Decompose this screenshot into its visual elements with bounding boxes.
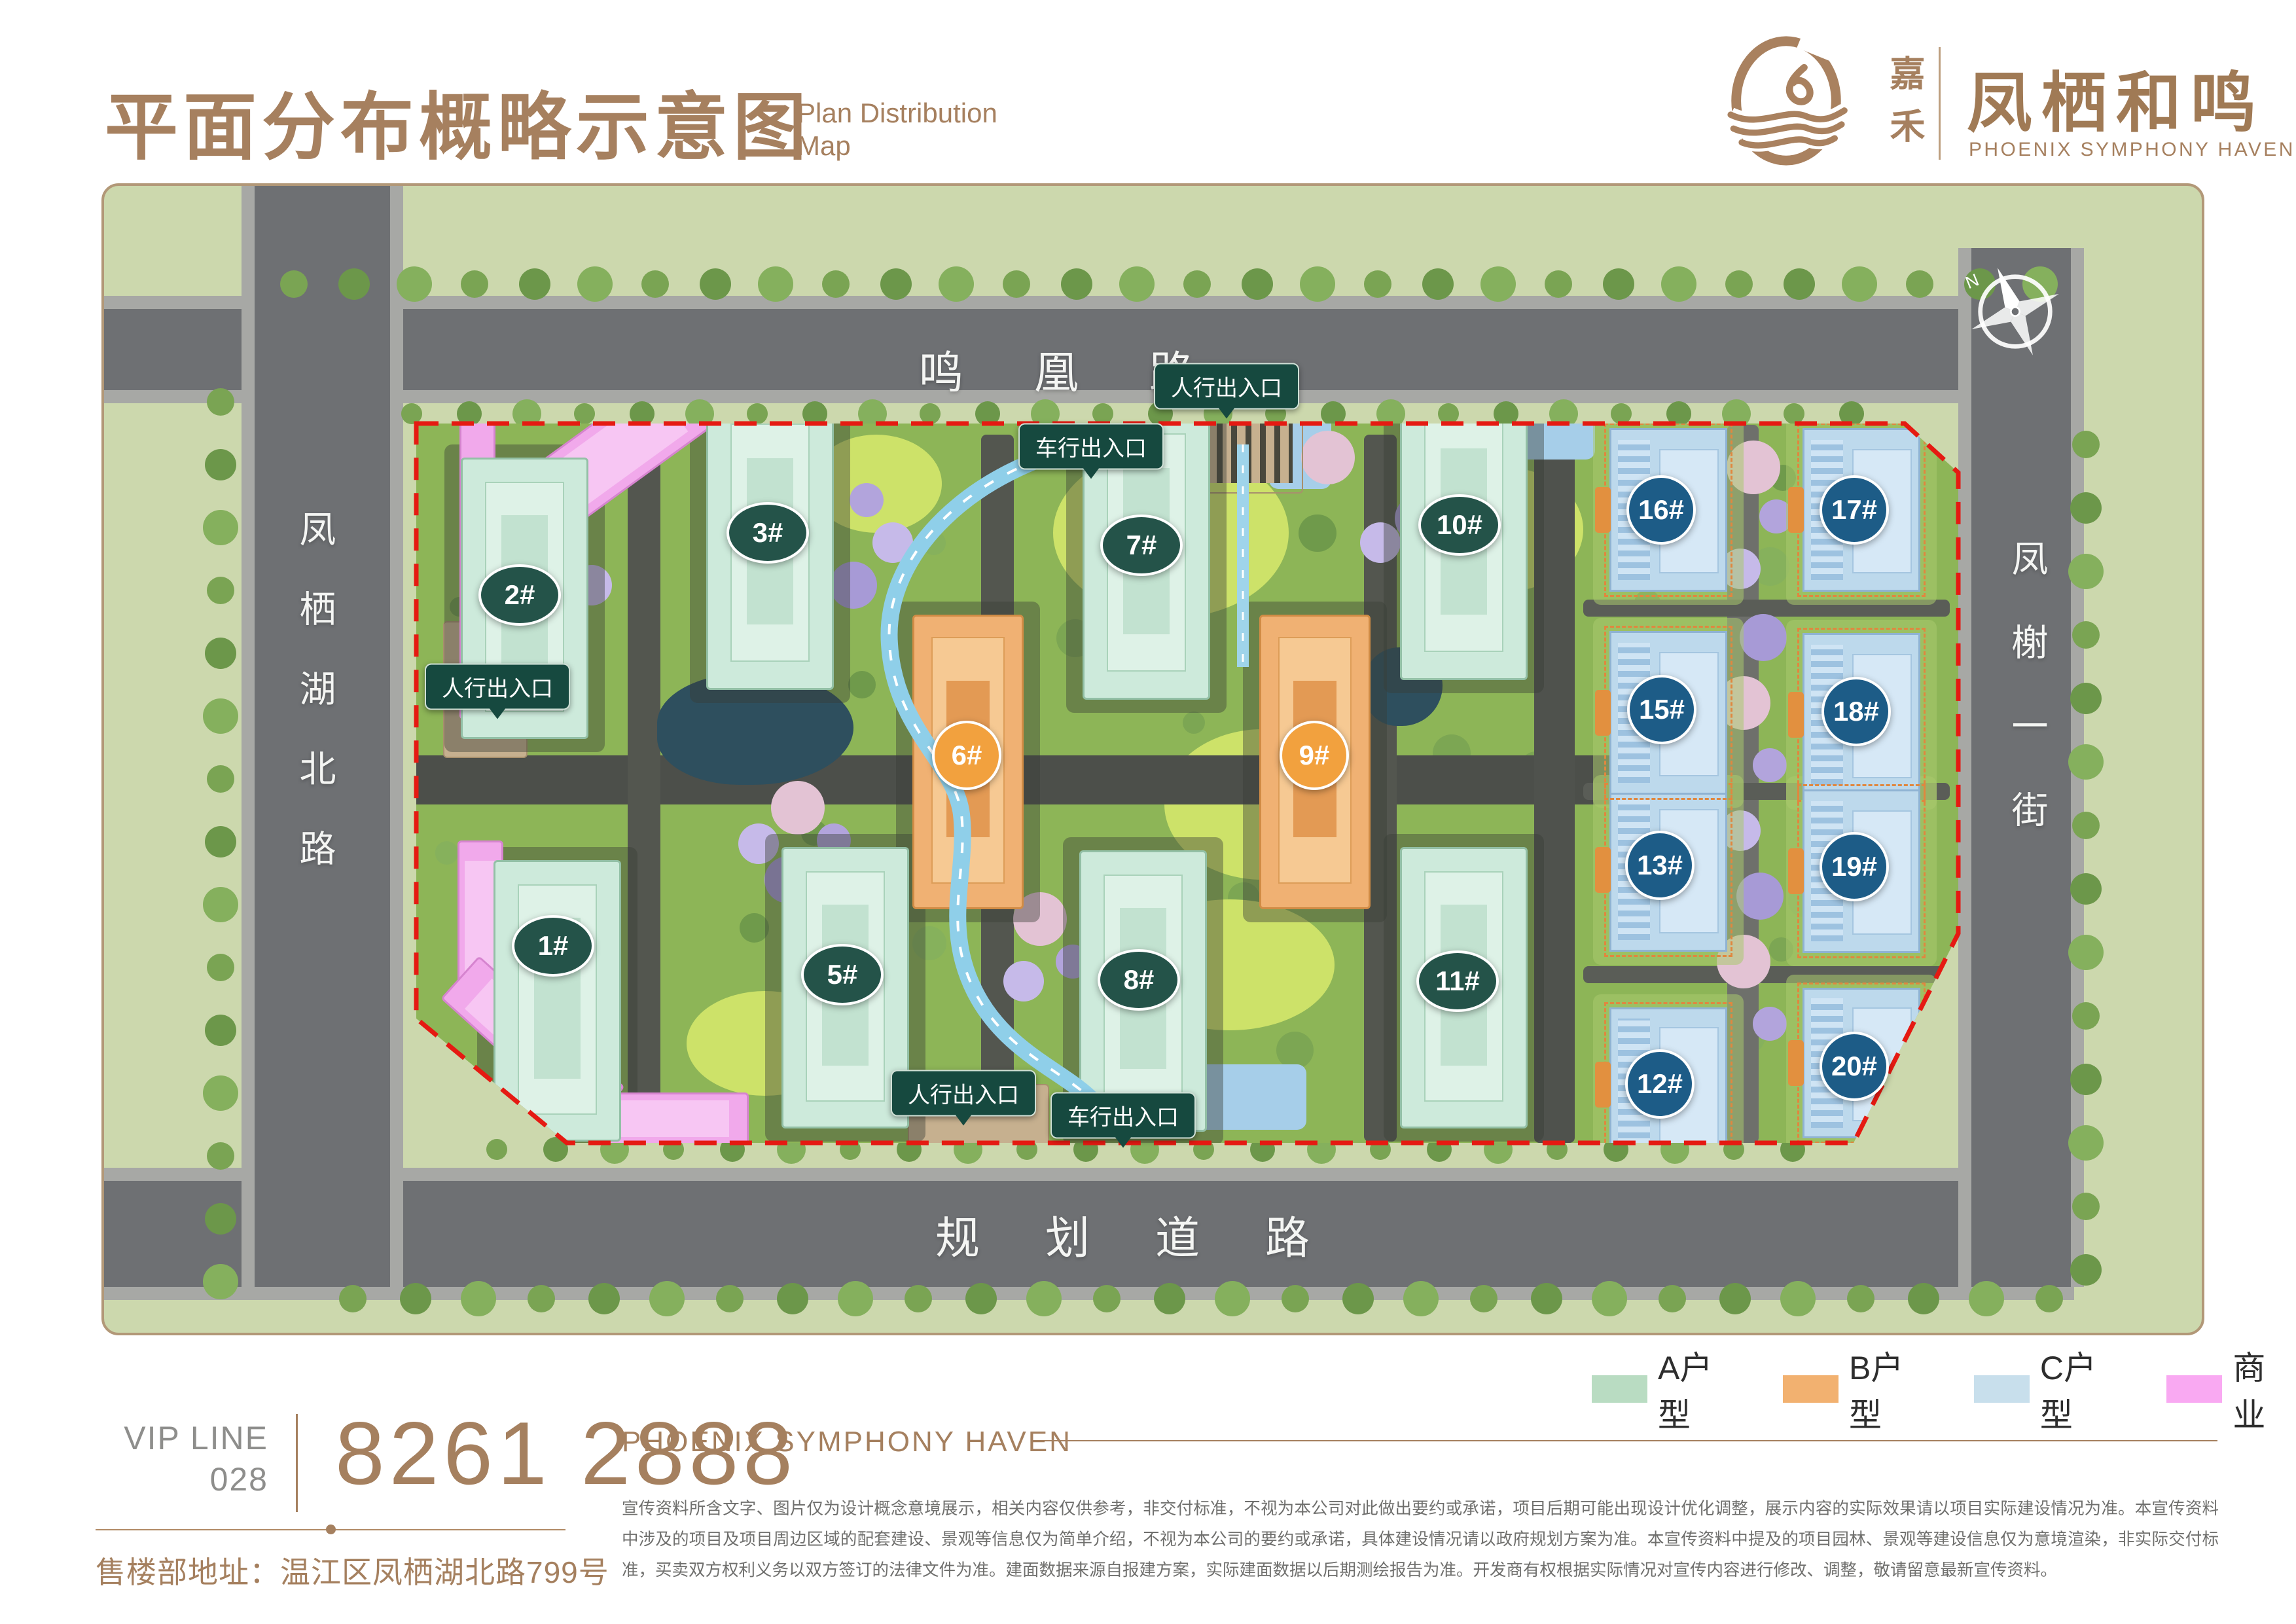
tree xyxy=(802,401,827,426)
tree xyxy=(207,577,234,604)
road-label-bottom: 规划道路 xyxy=(935,1202,1375,1267)
building-badge-2: 2# xyxy=(478,564,561,626)
tree xyxy=(1282,1285,1309,1312)
tree xyxy=(1784,403,1804,424)
blossom-tree xyxy=(850,483,884,517)
building-badge-18: 18# xyxy=(1821,677,1891,746)
page-root: { "header": { "title": "平面分布概略示意图", "sub… xyxy=(0,0,2296,1624)
blossom-tree xyxy=(771,781,825,835)
tree xyxy=(205,826,236,857)
project-name-cn: 凤栖和鸣 xyxy=(1967,50,2265,145)
tree xyxy=(922,531,946,556)
building-badge-20: 20# xyxy=(1820,1032,1889,1101)
tree xyxy=(777,1283,808,1314)
sidewalk xyxy=(1958,248,1971,1287)
legend-item-3: 商业 xyxy=(2166,1342,2296,1436)
tree xyxy=(1659,1285,1686,1312)
legend-item-1: B户型 xyxy=(1783,1342,1933,1436)
tree xyxy=(1183,270,1211,298)
legend-item-0: A户型 xyxy=(1592,1342,1742,1436)
tree xyxy=(716,1285,744,1312)
tree xyxy=(1666,401,1691,426)
tree xyxy=(2072,621,2100,649)
vip-area-code: 028 xyxy=(79,1459,268,1500)
tree xyxy=(400,1283,431,1314)
tree xyxy=(2068,935,2104,970)
page-subtitle-en: Plan Distribution Map xyxy=(797,97,997,162)
tree xyxy=(1093,1285,1121,1312)
project-name-en: PHOENIX SYMPHONY HAVEN xyxy=(1969,139,2295,161)
building-badge-10: 10# xyxy=(1418,494,1501,556)
villa-entry-chip xyxy=(1788,487,1804,533)
tree xyxy=(2068,1125,2104,1161)
tree xyxy=(1154,1283,1185,1314)
footer-project-en: PHOENIX SYMPHONY HAVEN xyxy=(622,1426,1072,1458)
tree xyxy=(1592,1281,1627,1316)
building-badge-3: 3# xyxy=(726,502,809,564)
tree xyxy=(1784,268,1815,300)
tree xyxy=(1242,268,1273,300)
building-1 xyxy=(493,860,621,1142)
villa-entry-chip xyxy=(1595,487,1611,533)
tree xyxy=(461,270,488,298)
tree xyxy=(205,449,236,480)
blossom-tree xyxy=(1753,1007,1787,1041)
building-badge-1: 1# xyxy=(512,915,594,977)
legend-swatch xyxy=(1974,1375,2030,1403)
building-badge-19: 19# xyxy=(1820,832,1889,901)
building-badge-7: 7# xyxy=(1100,514,1183,576)
page-title: 平面分布概略示意图 xyxy=(105,68,812,174)
tree xyxy=(2070,1064,2102,1095)
legend-swatch xyxy=(1783,1375,1839,1403)
tree xyxy=(205,1015,236,1046)
tree xyxy=(641,270,669,298)
tree xyxy=(630,401,655,426)
tree xyxy=(939,266,974,302)
address-divider-dot xyxy=(326,1525,336,1534)
tree xyxy=(207,954,234,981)
building-badge-11: 11# xyxy=(1416,950,1499,1012)
tree xyxy=(1725,270,1753,298)
tree xyxy=(2072,1002,2100,1030)
brand-logo: 嘉禾 凤栖和鸣 PHOENIX SYMPHONY HAVEN xyxy=(1715,29,2271,179)
blossom-tree xyxy=(1740,614,1787,661)
tree xyxy=(1545,270,1572,298)
tree xyxy=(486,1139,507,1160)
tree xyxy=(975,401,1000,426)
legend-swatch xyxy=(2166,1375,2222,1403)
tree xyxy=(1480,266,1516,302)
tree xyxy=(1780,1281,1816,1316)
tree xyxy=(758,266,793,302)
tree xyxy=(1969,1281,2004,1316)
tree xyxy=(205,1203,236,1235)
tree xyxy=(203,1264,238,1299)
villa-entry-chip xyxy=(1595,847,1611,893)
tree xyxy=(207,388,234,416)
tree xyxy=(1026,1281,1062,1316)
entrance-badge-3: 人行出入口 xyxy=(891,1070,1036,1117)
entrance-badge-1: 车行出入口 xyxy=(1018,424,1164,470)
tree xyxy=(577,266,613,302)
villa-entry-chip xyxy=(1788,1040,1804,1086)
road-label-right: 凤榭一街 xyxy=(2001,539,2054,875)
tree xyxy=(1422,268,1454,300)
page-subtitle-line1: Plan Distribution xyxy=(797,97,997,130)
tree xyxy=(2070,492,2102,524)
building-badge-5: 5# xyxy=(801,944,884,1005)
tree xyxy=(207,1142,234,1170)
tree xyxy=(1842,266,1877,302)
tree xyxy=(822,270,850,298)
vip-line-label: VIP LINE xyxy=(79,1418,268,1459)
tree xyxy=(397,266,432,302)
tree xyxy=(2072,812,2100,839)
tree xyxy=(920,403,941,424)
tree xyxy=(1119,266,1155,302)
tree xyxy=(203,1075,238,1111)
building-badge-6: 6# xyxy=(932,721,1001,790)
footer-rule xyxy=(1041,1440,2217,1441)
legend-item-2: C户型 xyxy=(1974,1342,2126,1436)
sales-address: 售楼部地址：温江区凤栖湖北路799号 xyxy=(96,1549,609,1592)
tree xyxy=(1908,1283,1939,1314)
tree xyxy=(2068,744,2104,780)
tree xyxy=(1321,401,1346,426)
tree xyxy=(401,403,422,424)
building-badge-13: 13# xyxy=(1625,831,1695,900)
entrance-badge-2: 人行出入口 xyxy=(425,664,570,710)
tree xyxy=(1603,268,1634,300)
tree xyxy=(2070,1254,2102,1286)
tree xyxy=(461,1281,496,1316)
entrance-badge-4: 车行出入口 xyxy=(1050,1092,1196,1139)
tree xyxy=(1839,401,1864,426)
tree xyxy=(339,1285,367,1312)
building-badge-9: 9# xyxy=(1280,721,1349,790)
villa-entry-chip xyxy=(1788,848,1804,894)
tree xyxy=(588,1283,620,1314)
tree xyxy=(1719,1283,1751,1314)
tree xyxy=(203,698,238,734)
sidewalk xyxy=(242,186,255,1287)
legend-label: 商业 xyxy=(2233,1342,2296,1436)
legend-label: B户型 xyxy=(1849,1342,1933,1436)
entrance-badge-0: 人行出入口 xyxy=(1154,363,1299,410)
map-canvas: 1#2#3#5#6#7#8#9#10#11#12#13#15#16#17#18#… xyxy=(101,183,2204,1335)
tree xyxy=(574,403,595,424)
blossom-tree xyxy=(1753,748,1787,782)
building-badge-15: 15# xyxy=(1627,675,1696,744)
disclaimer-text: 宣传资料所含文字、图片仅为设计概念意境展示，相关内容仅供参考，非交付标准，不视为… xyxy=(622,1494,2219,1587)
tree xyxy=(435,841,458,864)
tree xyxy=(1300,266,1335,302)
legend-label: A户型 xyxy=(1658,1342,1742,1436)
tree xyxy=(905,1285,932,1312)
tree xyxy=(1661,266,1696,302)
building-badge-17: 17# xyxy=(1820,475,1889,545)
blossom-tree xyxy=(1301,431,1355,484)
building-badge-8: 8# xyxy=(1098,949,1180,1011)
tree xyxy=(280,270,308,298)
tree xyxy=(1906,270,1933,298)
logo-emblem-icon xyxy=(1715,31,1857,170)
tree xyxy=(1299,514,1336,552)
tree xyxy=(747,403,768,424)
tree xyxy=(205,638,236,669)
brand-name-cn: 嘉禾 xyxy=(1878,55,1930,160)
tree xyxy=(207,765,234,793)
tree xyxy=(1342,1283,1374,1314)
legend-label: C户型 xyxy=(2040,1342,2126,1436)
tree xyxy=(203,887,238,922)
tree xyxy=(1003,270,1030,298)
road-label-left: 凤栖湖北路 xyxy=(289,510,342,909)
tree xyxy=(338,268,370,300)
compass-north-label: N xyxy=(1963,270,1982,293)
tree xyxy=(1611,403,1632,424)
page-subtitle-line2: Map xyxy=(797,130,997,162)
tree xyxy=(2072,1193,2100,1220)
villa-entry-chip xyxy=(1595,1062,1611,1108)
sidewalk xyxy=(390,186,403,1287)
building-badge-12: 12# xyxy=(1625,1049,1695,1119)
tree xyxy=(965,1283,997,1314)
tree xyxy=(2070,683,2102,714)
tree xyxy=(203,510,238,545)
tree xyxy=(1847,1285,1874,1312)
tree xyxy=(1364,270,1391,298)
villa-entry-chip xyxy=(1595,690,1611,736)
tree xyxy=(1531,1283,1562,1314)
logo-divider xyxy=(1939,47,1941,160)
tree xyxy=(1470,1285,1498,1312)
tree xyxy=(1494,401,1518,426)
tree xyxy=(432,1044,456,1068)
tree xyxy=(457,401,482,426)
tree xyxy=(1183,712,1205,734)
tree xyxy=(649,1281,685,1316)
tree xyxy=(519,268,550,300)
tree xyxy=(528,1285,555,1312)
tree xyxy=(848,671,876,698)
tree xyxy=(838,1281,873,1316)
blossom-tree xyxy=(872,522,913,563)
tree xyxy=(1438,403,1459,424)
tree xyxy=(1061,268,1092,300)
tree xyxy=(1092,403,1113,424)
tree xyxy=(1215,1281,1250,1316)
villa-entry-chip xyxy=(1788,692,1804,738)
tree xyxy=(880,268,912,300)
tree xyxy=(2036,1285,2063,1312)
legend-swatch xyxy=(1592,1375,1647,1403)
tree xyxy=(1276,1032,1314,1069)
tree xyxy=(1403,1281,1439,1316)
building-badge-16: 16# xyxy=(1626,475,1696,545)
tree xyxy=(700,268,731,300)
tree xyxy=(2070,873,2102,905)
legend: A户型B户型C户型商业 xyxy=(1592,1342,2296,1436)
vip-line-block: VIP LINE 028 xyxy=(79,1418,268,1500)
tree xyxy=(2072,431,2100,458)
footer-divider xyxy=(296,1414,298,1512)
blossom-tree xyxy=(1003,961,1044,1001)
tree xyxy=(2068,554,2104,589)
compass-icon: N xyxy=(1963,259,2068,364)
